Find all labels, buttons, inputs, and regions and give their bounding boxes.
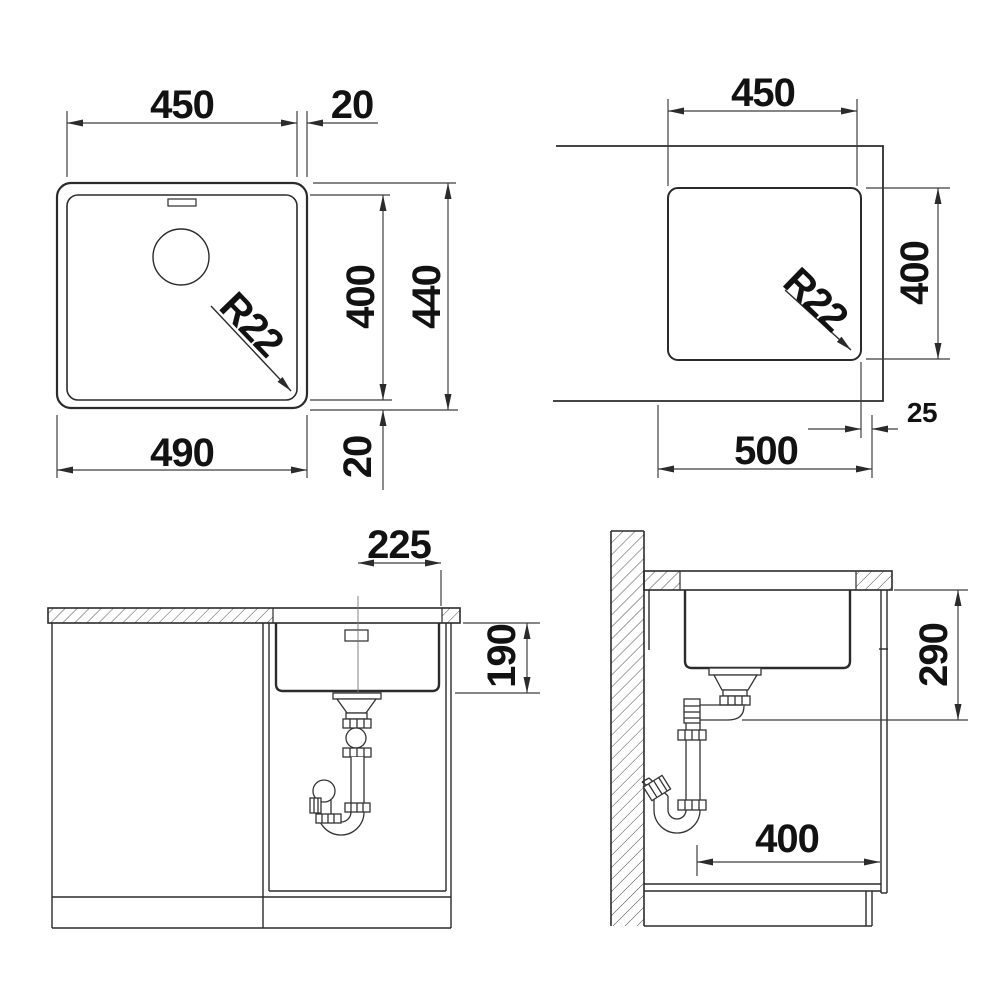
dim-cabinet-depth-label: 400	[755, 817, 819, 861]
worktop-hatch-front	[856, 571, 892, 590]
dim-bowl-depth-label: 190	[480, 624, 524, 688]
dim-rim-top-label: 20	[331, 83, 374, 127]
wall-hatch	[611, 531, 644, 926]
dim-cabinet-width-label: 500	[734, 429, 798, 473]
sink-installation-drawing: R22 450 20 400 440	[0, 0, 1000, 1000]
pipe-coupling	[343, 748, 371, 757]
dim-cutout-depth-label: 400	[893, 241, 937, 305]
worktop-hatch-left	[48, 608, 273, 623]
pipe-coupling	[316, 814, 341, 823]
dim-cutout-width-label: 450	[731, 71, 795, 115]
strainer-flange	[333, 693, 381, 699]
pipe-coupling	[343, 719, 371, 728]
ball-elbow	[346, 728, 366, 748]
elbow-coupling	[684, 699, 700, 723]
wall-stub-nut	[310, 798, 321, 813]
pipe-coupling	[678, 730, 706, 740]
pipe-coupling	[678, 800, 706, 810]
dim-outer-width-label: 490	[150, 431, 214, 475]
worktop-hatch-right	[442, 608, 460, 623]
drawing-background	[0, 0, 1000, 1000]
dim-inner-depth-label: 400	[339, 265, 383, 329]
dim-drain-offset-label: 225	[367, 523, 431, 567]
pipe-coupling	[345, 803, 370, 812]
dim-inner-width-label: 450	[150, 83, 214, 127]
worktop-hatch-back	[644, 571, 680, 590]
dim-outer-depth-label: 440	[405, 265, 449, 329]
technical-drawing-canvas: R22 450 20 400 440	[0, 0, 1000, 1000]
dim-edge-distance-label: 25	[907, 397, 937, 428]
dim-clearance-height-label: 290	[912, 623, 956, 687]
dim-rim-bottom-label: 20	[336, 436, 380, 479]
pipe-coupling	[720, 696, 750, 705]
strainer-flange-side	[709, 668, 761, 675]
